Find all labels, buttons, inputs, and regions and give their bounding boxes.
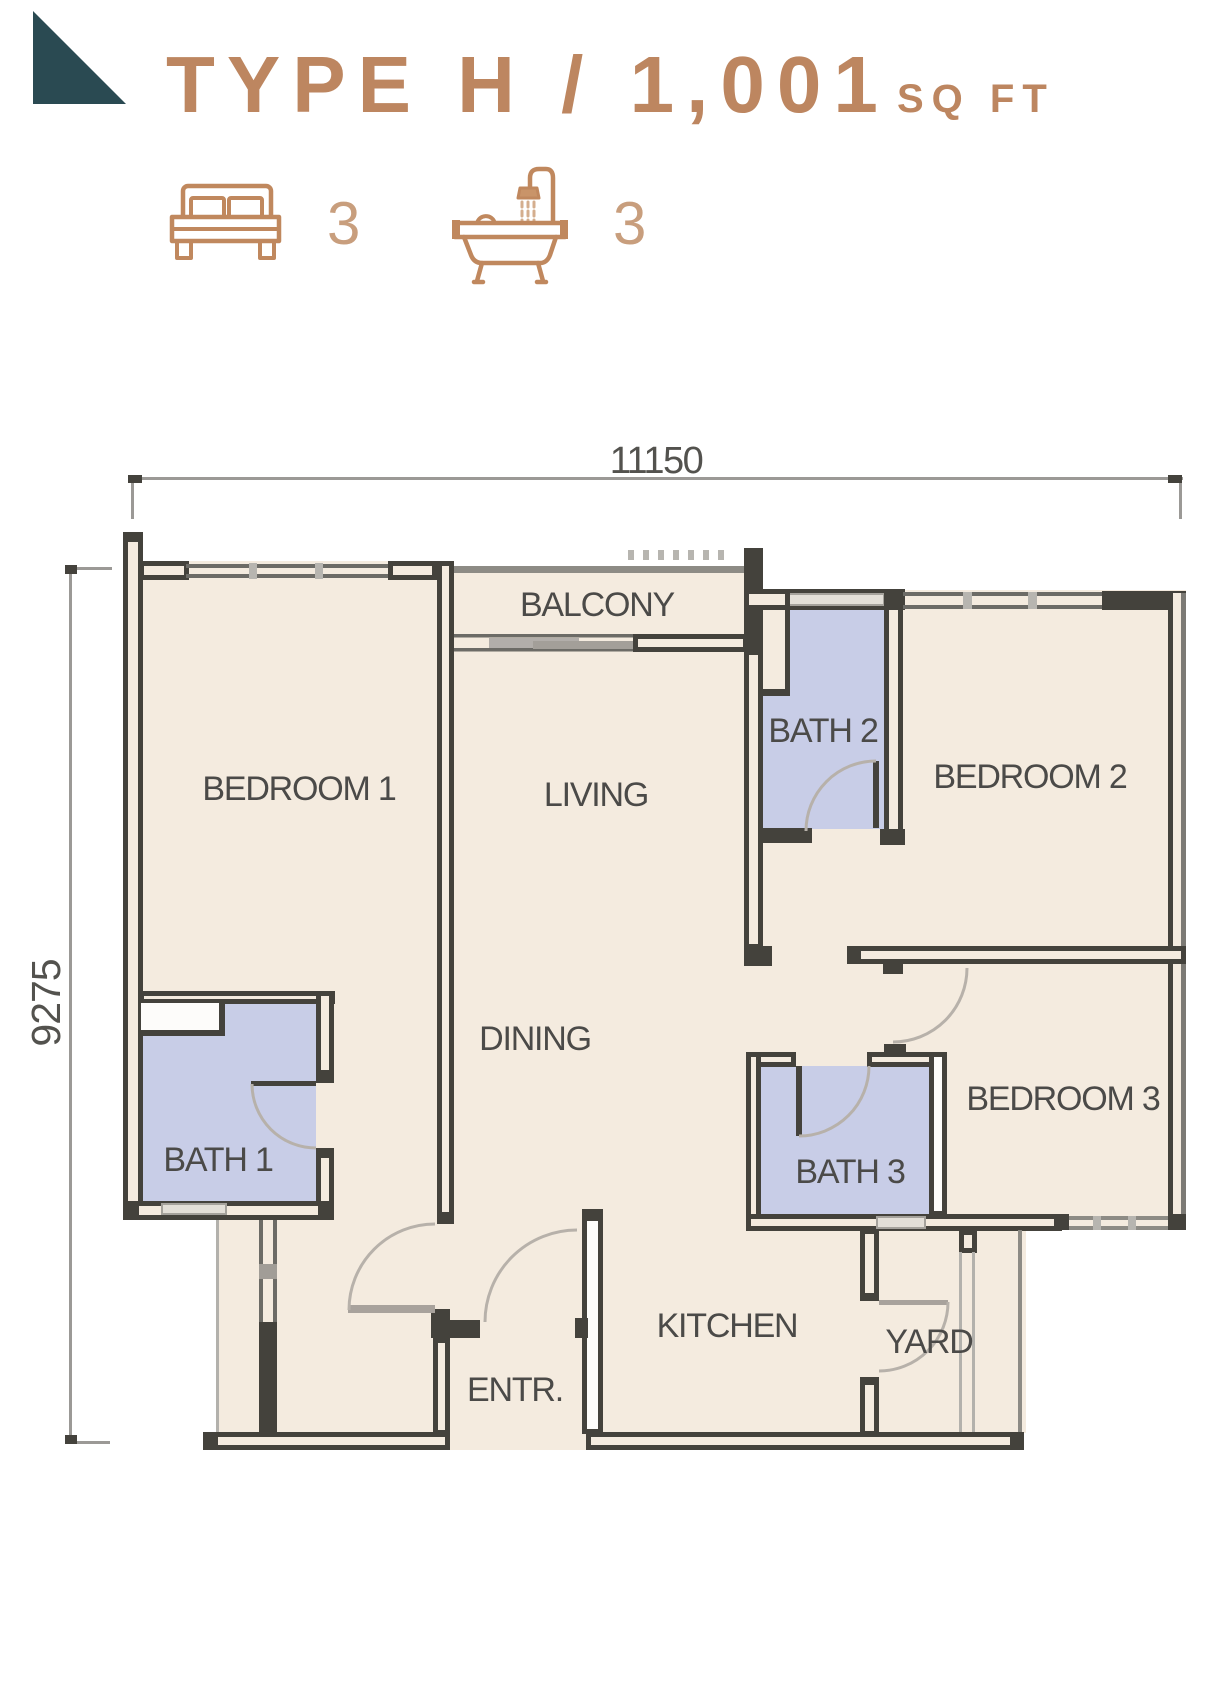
- svg-text:DINING: DINING: [479, 1020, 591, 1058]
- svg-text:9275: 9275: [23, 959, 69, 1046]
- svg-text:BATH 1: BATH 1: [163, 1141, 273, 1179]
- svg-text:LIVING: LIVING: [544, 776, 648, 814]
- svg-text:BEDROOM 2: BEDROOM 2: [933, 758, 1127, 796]
- svg-text:BATH 2: BATH 2: [768, 712, 878, 750]
- svg-text:SQ FT: SQ FT: [897, 77, 1055, 121]
- svg-text:TYPE H / 1,001: TYPE H / 1,001: [166, 40, 890, 129]
- svg-text:KITCHEN: KITCHEN: [657, 1307, 798, 1345]
- svg-text:YARD: YARD: [885, 1323, 972, 1361]
- svg-text:BATH 3: BATH 3: [795, 1153, 905, 1191]
- svg-text:11150: 11150: [610, 440, 703, 482]
- svg-text:ENTR.: ENTR.: [467, 1371, 563, 1409]
- svg-text:3: 3: [327, 190, 360, 257]
- svg-text:BEDROOM 3: BEDROOM 3: [966, 1080, 1160, 1118]
- svg-text:BALCONY: BALCONY: [520, 586, 675, 624]
- svg-text:BEDROOM 1: BEDROOM 1: [202, 770, 396, 808]
- svg-text:3: 3: [613, 190, 646, 257]
